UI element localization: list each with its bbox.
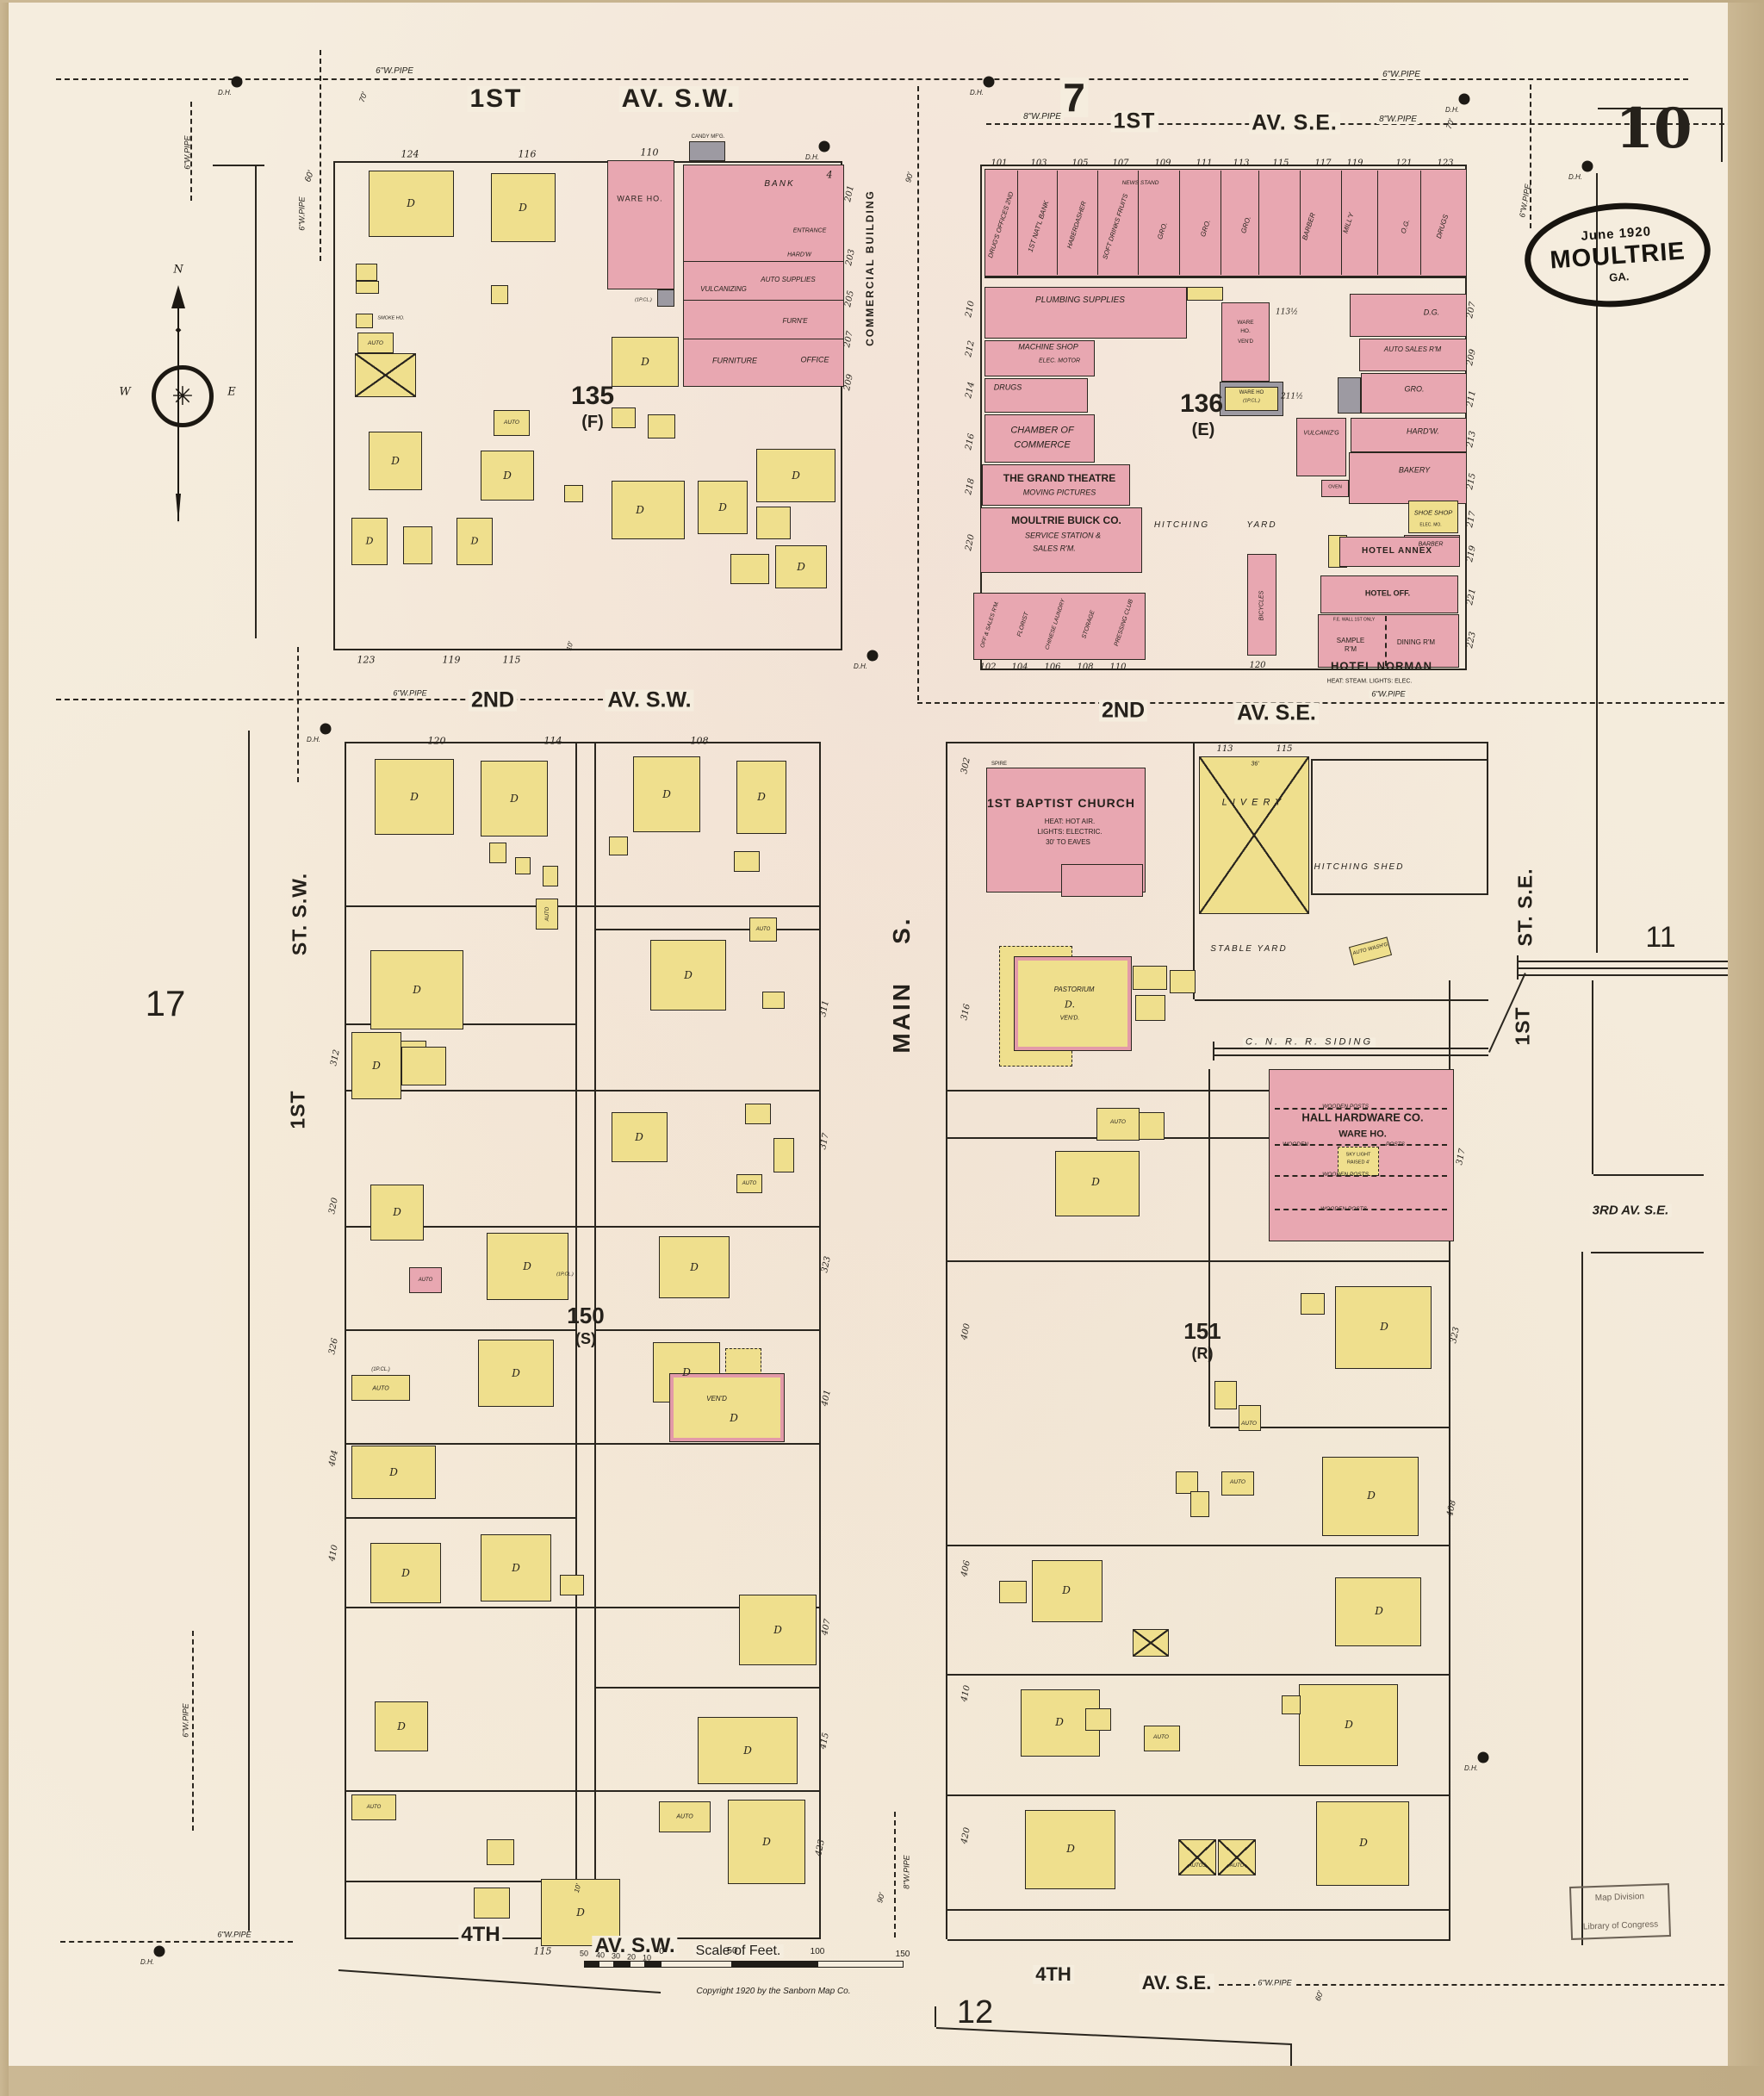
map-label: DINING R'M — [1397, 639, 1435, 646]
map-label: POSTS — [1386, 1142, 1405, 1148]
map-label: 211½ — [1281, 394, 1303, 401]
map-label: 150 — [567, 1304, 604, 1327]
lot-line — [213, 165, 264, 166]
map-label: AUTO — [1230, 1480, 1245, 1486]
building — [1350, 294, 1467, 337]
dh-label: D.H. — [1445, 107, 1459, 114]
dh-label: D.H. — [140, 1959, 154, 1966]
building — [355, 353, 416, 397]
map-label: MAIN S. — [890, 916, 914, 1053]
map-label: 410 — [328, 1545, 340, 1563]
lot-line — [947, 1260, 1450, 1262]
mat-edge-left — [0, 0, 9, 2096]
building — [356, 314, 373, 328]
map-label: VULCANIZING — [700, 286, 747, 293]
map-label: D — [762, 1837, 771, 1847]
building — [999, 1581, 1027, 1603]
map-label: 317 — [819, 1133, 831, 1151]
lot-line — [683, 339, 844, 339]
building — [607, 160, 674, 289]
map-label: D — [372, 1060, 381, 1071]
map-label: VEN'D — [706, 1396, 727, 1403]
map-label: 111 — [1196, 159, 1212, 168]
dh-label: D.H. — [1568, 174, 1582, 181]
lot-line — [1519, 974, 1728, 976]
lot-line — [1341, 171, 1342, 275]
lot-line — [683, 261, 844, 262]
map-label: D — [1066, 1844, 1075, 1854]
dh-label: D.H. — [307, 737, 320, 743]
mat-edge-right — [1728, 0, 1764, 2096]
map-label: D — [730, 1413, 738, 1423]
lot-line — [1592, 980, 1593, 1174]
map-label: 103 — [1030, 159, 1047, 168]
lot-line — [1517, 955, 1519, 980]
map-label: GRO. — [1404, 386, 1424, 394]
dh-hydrant-dot — [232, 77, 243, 88]
map-layer: D.H.D.H.D.H.D.H.D.H.D.H.D.H.D.H.D.H.1STA… — [9, 3, 1728, 2066]
map-label: 415 — [819, 1732, 831, 1751]
compass-star-icon: ✳ — [171, 382, 193, 412]
lot-line — [1519, 967, 1728, 969]
building — [734, 851, 760, 872]
map-label: 123 — [1437, 159, 1453, 168]
map-label: 70' — [1445, 118, 1456, 130]
building — [1296, 418, 1346, 476]
map-label: AUTO — [676, 1814, 693, 1820]
compass-east-label: E — [227, 386, 236, 399]
lot-line — [1591, 1252, 1704, 1253]
building — [1301, 1293, 1325, 1315]
map-label: 205 — [844, 290, 856, 308]
map-label: LIGHTS: ELECTRIC. — [1037, 829, 1102, 836]
map-label: D — [391, 456, 400, 466]
map-label: AV. S.W. — [605, 690, 693, 712]
building — [1139, 1112, 1165, 1140]
building — [356, 264, 377, 281]
map-label: 136 — [1180, 391, 1223, 417]
dh-hydrant-dot — [1478, 1752, 1489, 1763]
map-label: SAMPLE — [1337, 638, 1364, 644]
map-label: HO. — [1240, 329, 1251, 335]
map-label: R'M — [1345, 646, 1357, 653]
dh-hydrant-dot — [984, 77, 995, 88]
map-label: FURNITURE — [712, 358, 757, 365]
map-label: D — [576, 1907, 585, 1918]
lot-line — [1581, 1252, 1583, 1945]
map-label: 90' — [904, 171, 915, 183]
map-label: D — [1359, 1838, 1368, 1848]
map-label: 201 — [844, 185, 856, 203]
map-label: 217 — [1466, 511, 1478, 529]
building — [1338, 377, 1361, 414]
map-label: AUTO — [372, 1386, 388, 1392]
map-label: D — [410, 792, 419, 802]
lot-line — [1221, 171, 1221, 275]
map-label: 135 — [571, 383, 614, 409]
map-label: 105 — [1071, 159, 1088, 168]
map-label: AUTO SALES R'M — [1384, 346, 1441, 353]
map-label: 214 — [965, 382, 977, 400]
map-label: AUTO SUPPLIES — [761, 277, 815, 283]
map-label: DRUGS — [994, 384, 1022, 392]
map-label: F.E. WALL 1ST ONLY — [1333, 619, 1375, 623]
building — [1133, 966, 1167, 990]
map-label: 8"W.PIPE — [1021, 113, 1064, 121]
map-label: 423 — [815, 1839, 827, 1857]
building — [725, 1348, 761, 1376]
map-label: (1P.CL.) — [635, 298, 652, 303]
map-label: D — [792, 470, 800, 481]
map-label: D — [662, 789, 671, 799]
compass-north-arrow-icon — [171, 285, 185, 308]
map-label: HOTEL OFF. — [1365, 590, 1410, 598]
map-label: 207 — [1466, 302, 1478, 320]
pipe-line — [1219, 1984, 1728, 1986]
lot-line — [1017, 171, 1018, 275]
map-label: WARE HO. — [617, 196, 662, 203]
map-label: 0 — [659, 1948, 664, 1956]
map-label: AUTO — [1110, 1120, 1126, 1126]
lot-line — [683, 300, 844, 301]
map-label: 212 — [965, 340, 977, 358]
map-label: D — [1380, 1322, 1388, 1332]
map-label: WARE HO — [1239, 390, 1264, 395]
scale-bar-segment — [661, 1961, 732, 1968]
map-label: WOODEN POSTS — [1322, 1104, 1369, 1110]
map-label: (R) — [1192, 1346, 1214, 1361]
library-stamp: Map Division Library of Congress — [1569, 1883, 1671, 1940]
map-label: 203 — [845, 249, 857, 267]
map-label: 6"W.PIPE — [299, 196, 307, 230]
map-label: D — [366, 537, 374, 546]
building — [984, 287, 1187, 339]
map-label: 110 — [1109, 663, 1126, 672]
map-label: 207 — [843, 331, 855, 349]
pipe-line — [917, 702, 1728, 704]
building — [756, 507, 791, 539]
map-label: ST. S.W. — [290, 873, 310, 955]
map-label: 6"W.PIPE — [1369, 691, 1407, 699]
building — [689, 141, 725, 161]
building — [1170, 970, 1196, 993]
map-label: RAISED 4' — [1347, 1160, 1370, 1166]
map-label: 6"W.PIPE — [390, 690, 429, 698]
map-label: 210 — [965, 301, 977, 319]
lot-line — [947, 1909, 1450, 1911]
map-label: 211 — [1466, 390, 1478, 408]
lot-line — [1179, 171, 1180, 275]
map-label: COMMERCIAL BUILDING — [865, 190, 875, 346]
scale-bar-segment — [732, 1961, 817, 1968]
map-label: Scale of Feet. — [693, 1944, 784, 1958]
map-label: 109 — [1154, 159, 1171, 168]
map-label: 410 — [960, 1685, 972, 1703]
mat-edge-bottom — [0, 2066, 1764, 2096]
lot-line — [1721, 108, 1723, 162]
scale-bar-segment — [599, 1961, 614, 1968]
map-label: MOVING PICTURES — [1023, 489, 1096, 497]
map-label: 223 — [1466, 631, 1478, 650]
lot-line — [1193, 742, 1195, 999]
map-label: 116 — [519, 150, 537, 159]
map-label: D — [773, 1625, 782, 1635]
map-label: SHOE SHOP — [1414, 509, 1453, 516]
map-label: VULCANIZ'G — [1303, 431, 1339, 437]
dh-hydrant-dot — [867, 650, 879, 662]
building — [984, 414, 1095, 463]
building — [1190, 1491, 1209, 1517]
map-label: HALL HARDWARE CO. — [1301, 1112, 1423, 1123]
map-label: 2ND — [469, 690, 517, 712]
map-label: D — [401, 1568, 410, 1578]
map-label: 2ND — [1099, 700, 1147, 722]
map-label: 221 — [1466, 588, 1478, 606]
map-label: AUTO — [368, 341, 383, 347]
map-label: 401 — [821, 1390, 833, 1408]
map-label: D — [757, 792, 766, 802]
map-label: 216 — [965, 433, 977, 451]
map-label: 1ST — [467, 86, 525, 112]
map-label: 107 — [1112, 159, 1128, 168]
lot-line — [1214, 1048, 1488, 1049]
map-label: 113 — [1233, 159, 1249, 168]
map-label: 115 — [503, 656, 521, 665]
lot-line — [1097, 171, 1098, 275]
map-label: 11 — [1645, 923, 1675, 952]
building — [1199, 756, 1309, 914]
building — [745, 1104, 771, 1124]
map-label: 408 — [1446, 1500, 1458, 1518]
scale-bar-segment — [614, 1961, 630, 1968]
map-label: SPIRE — [991, 762, 1007, 767]
map-label: ENTRANCE — [793, 228, 827, 234]
map-label: MACHINE SHOP — [1018, 344, 1078, 351]
map-label: 70' — [358, 91, 369, 103]
map-label: 404 — [328, 1450, 340, 1468]
map-label: Copyright 1920 by the Sanborn Map Co. — [697, 1987, 851, 1996]
map-label: D — [684, 970, 693, 980]
map-label: 4TH — [1033, 1965, 1074, 1984]
map-label: 113 — [1216, 745, 1233, 754]
map-label: 115 — [1276, 745, 1292, 754]
map-label: 407 — [821, 1619, 833, 1637]
map-label: YARD — [1246, 521, 1276, 530]
map-label: 3RD AV. S.E. — [1590, 1204, 1672, 1217]
dh-hydrant-dot — [1459, 94, 1470, 105]
building — [1361, 373, 1467, 414]
map-label: D — [407, 198, 415, 208]
dh-label: D.H. — [970, 90, 984, 96]
map-label: 90' — [876, 1892, 886, 1904]
lot-line — [947, 1090, 1269, 1092]
map-label: SKY LIGHT — [1346, 1153, 1371, 1158]
lot-line — [1420, 171, 1421, 275]
map-label: ST. S.E. — [1516, 868, 1536, 946]
map-label: (1P.CL.) — [1243, 399, 1260, 404]
pipe-line — [917, 86, 919, 700]
building — [356, 281, 379, 294]
map-label: CANDY MF'G. — [692, 134, 725, 140]
map-label: 113½ — [1276, 309, 1298, 317]
building — [1085, 1708, 1111, 1731]
stamp-line2: Library of Congress — [1575, 1919, 1665, 1932]
building — [1135, 995, 1165, 1021]
lot-line — [1519, 961, 1728, 962]
map-label: 220 — [965, 534, 977, 552]
map-label: (1P.CL.) — [556, 1272, 574, 1278]
map-label: PLUMBING SUPPLIES — [1035, 296, 1125, 305]
map-label: 6"W.PIPE — [1255, 1980, 1294, 1987]
building — [1239, 1405, 1261, 1431]
map-label: 218 — [965, 478, 977, 496]
building — [1214, 1381, 1237, 1409]
map-label: STABLE YARD — [1210, 945, 1287, 954]
lot-line — [947, 1939, 1450, 1941]
map-label: D — [397, 1721, 406, 1732]
map-label: D — [413, 985, 421, 995]
map-label: 6"W.PIPE — [184, 135, 192, 169]
pipe-line — [1385, 616, 1387, 666]
map-label: AUTO — [504, 420, 519, 426]
map-label: SERVICE STATION & — [1025, 532, 1101, 540]
map-label: AV. S.E. — [1249, 113, 1340, 134]
map-label: 151 — [1183, 1320, 1221, 1342]
map-label: (F) — [581, 414, 604, 431]
lot-line — [339, 1969, 661, 1993]
lot-line — [255, 165, 257, 638]
map-label: 6"W.PIPE — [1380, 71, 1423, 79]
building — [609, 837, 628, 855]
map-label: HITCHING — [1154, 521, 1209, 530]
lot-line — [947, 1794, 1450, 1796]
lot-line — [947, 1674, 1450, 1676]
map-label: 120 — [1249, 662, 1265, 670]
map-label: 104 — [1011, 663, 1028, 672]
map-label: 6"W.PIPE — [214, 1931, 253, 1939]
lot-line — [947, 1545, 1450, 1546]
lot-line — [1300, 171, 1301, 275]
map-label: 317 — [1456, 1148, 1468, 1166]
map-label: 30 — [612, 1953, 620, 1961]
building — [474, 1888, 510, 1919]
map-label: 6"W.PIPE — [183, 1703, 190, 1737]
map-label: 121 — [1395, 159, 1412, 168]
block-outline — [1311, 759, 1488, 895]
pipe-line — [56, 78, 1688, 80]
map-label: 312 — [330, 1049, 342, 1067]
map-label: 102 — [979, 663, 996, 672]
map-label: 311 — [819, 1000, 831, 1018]
lot-line — [1213, 1042, 1214, 1060]
map-label: AUTO — [545, 907, 550, 922]
map-label: 420 — [960, 1827, 972, 1845]
map-label: 302 — [960, 757, 972, 775]
compass-ornament-icon: ◆ — [176, 326, 182, 335]
map-label: 215 — [1466, 473, 1478, 491]
map-label: 50 — [580, 1950, 588, 1958]
map-label: (S) — [575, 1331, 596, 1347]
building — [515, 857, 531, 874]
compass-west-label: W — [119, 386, 130, 399]
lot-line — [1593, 1174, 1704, 1176]
map-label: ELEC. MOTOR — [1039, 358, 1080, 364]
map-label: D — [797, 562, 805, 572]
lot-line — [935, 2006, 936, 2027]
lot-line — [1195, 999, 1488, 1001]
building — [1061, 864, 1143, 897]
map-label: AV. S.W. — [619, 86, 739, 112]
building — [612, 481, 685, 539]
map-label: SALES R'M. — [1033, 545, 1076, 553]
building — [648, 414, 675, 438]
map-label: 320 — [328, 1197, 340, 1216]
pipe-line — [894, 1812, 896, 1937]
map-label: 316 — [960, 1004, 972, 1022]
map-label: D — [519, 202, 527, 213]
map-label: 124 — [401, 150, 419, 159]
map-label: C. N. R. R. SIDING — [1243, 1038, 1376, 1048]
map-label: 117 — [1314, 159, 1331, 168]
map-label: MOULTRIE BUICK CO. — [1011, 515, 1121, 526]
pipe-line — [320, 50, 321, 261]
map-label: LIVERY — [1222, 799, 1287, 808]
map-label: 12 — [957, 1996, 993, 2029]
map-label: 7 — [1060, 78, 1088, 117]
building — [762, 992, 785, 1009]
map-label: AUTO — [1153, 1735, 1169, 1741]
building — [982, 464, 1130, 506]
map-label: AUTO — [1241, 1421, 1257, 1427]
building — [487, 1839, 514, 1865]
scale-bar-segment — [817, 1961, 904, 1968]
building — [1178, 1839, 1216, 1875]
dh-label: D.H. — [805, 154, 819, 161]
building — [612, 407, 636, 428]
lot-line — [1290, 2043, 1292, 2066]
pipe-line — [60, 1941, 293, 1943]
map-label: SMOKE HO. — [377, 316, 404, 321]
map-label: 10 — [1615, 102, 1692, 157]
map-label: 123 — [357, 656, 376, 665]
map-label: 209 — [843, 374, 855, 392]
map-label: D — [1062, 1585, 1071, 1595]
map-label: 20 — [627, 1954, 636, 1962]
map-label: OFFICE — [801, 357, 829, 364]
map-label: 6"W.PIPE — [373, 67, 416, 76]
map-label: BICYCLES — [1259, 591, 1265, 621]
map-label: AUTO — [367, 1805, 382, 1810]
building — [1408, 501, 1458, 533]
compass-north-label: N — [173, 264, 183, 277]
map-label: NEWS STAND — [1122, 181, 1159, 187]
map-label: D — [1055, 1717, 1064, 1727]
building — [1282, 1695, 1301, 1714]
map-label: 40 — [596, 1952, 605, 1960]
map-label: D — [393, 1207, 401, 1217]
map-label: COMMERCE — [1014, 441, 1070, 451]
map-sheet-paper: D.H.D.H.D.H.D.H.D.H.D.H.D.H.D.H.D.H.1STA… — [9, 3, 1728, 2066]
map-label: BANK — [764, 180, 794, 189]
map-label: 101 — [991, 159, 1007, 168]
lot-line — [1214, 1054, 1488, 1056]
map-label: D — [718, 502, 727, 513]
map-label: D — [523, 1261, 531, 1272]
map-label: 1ST — [1513, 1006, 1533, 1045]
map-label: D — [512, 1368, 520, 1378]
dh-hydrant-dot — [320, 724, 332, 735]
map-label: AUTO — [1230, 1863, 1245, 1869]
